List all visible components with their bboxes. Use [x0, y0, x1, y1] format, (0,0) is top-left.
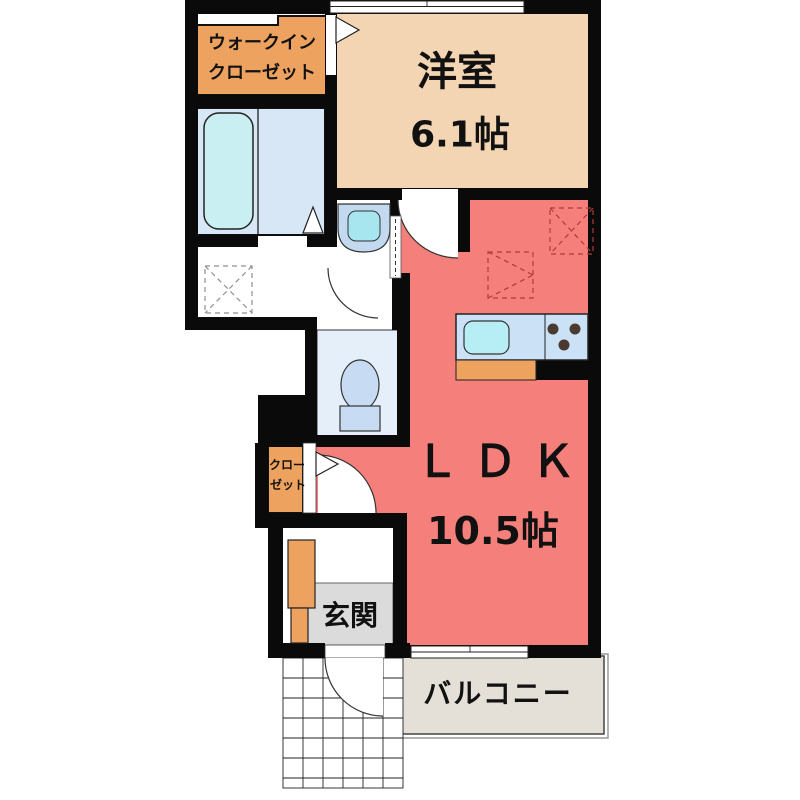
bathtub-icon — [204, 113, 253, 229]
closet-label-line1: クロー — [269, 459, 305, 473]
kitchen-sink-icon — [464, 321, 509, 354]
balcony-label: バルコニー — [423, 678, 572, 710]
western-room-label: 洋室 — [417, 49, 497, 95]
floor-plan: ウォークイン クローゼット 洋室 6.1帖 ＬＤＫ 10.5帖 クロー ゼット … — [0, 0, 800, 800]
door-arc-toilet — [328, 268, 378, 318]
washbasin-icon — [338, 204, 390, 252]
walk-in-closet-label-line2: クローゼット — [208, 64, 316, 85]
kitchen-cabinet — [456, 360, 536, 380]
closet-label-line2: ゼット — [270, 479, 306, 493]
washing-machine-space-icon — [205, 266, 252, 313]
entrance-label: 玄関 — [322, 600, 378, 632]
floor-plan-drawing — [0, 0, 800, 800]
walk-in-closet-label-line1: ウォークイン — [208, 34, 316, 55]
window-western-room — [330, 1, 524, 13]
door-washroom-folding — [390, 216, 401, 278]
toilet-icon — [340, 360, 380, 431]
room-western — [322, 10, 590, 192]
western-room-size: 6.1帖 — [410, 114, 510, 155]
window-balcony — [411, 646, 528, 658]
ldk-label: ＬＤＫ — [415, 438, 589, 489]
ldk-size: 10.5帖 — [427, 510, 559, 554]
